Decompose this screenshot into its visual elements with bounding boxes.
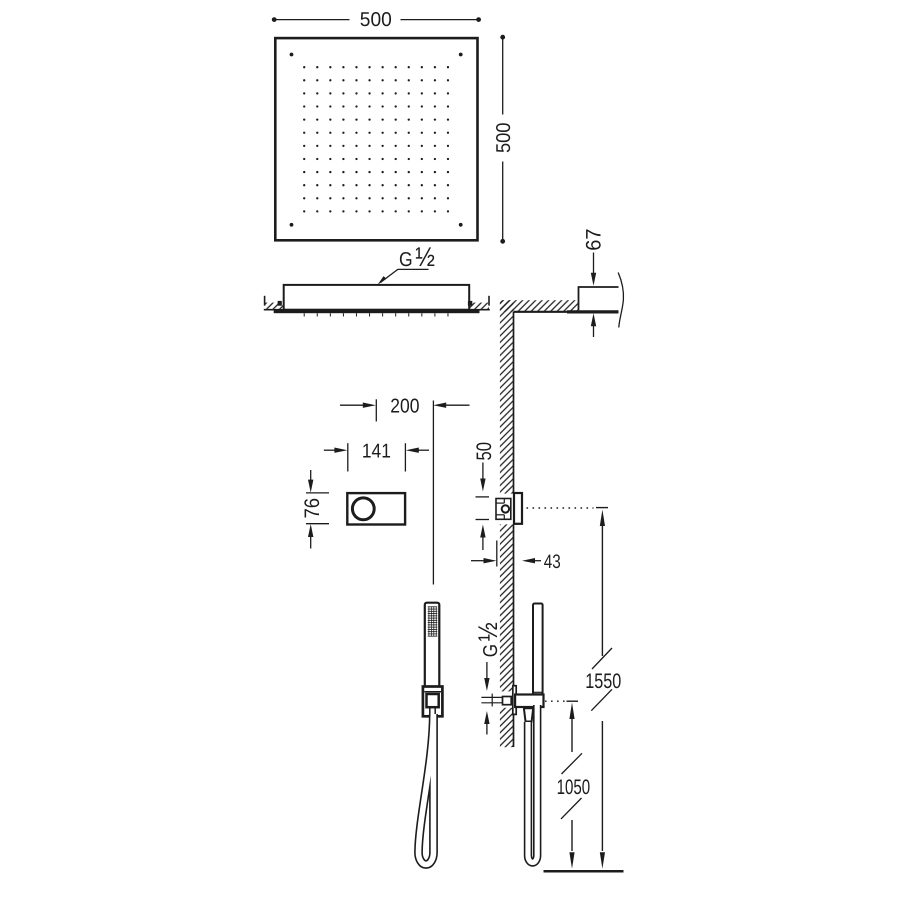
svg-text:1050: 1050 bbox=[557, 776, 591, 799]
svg-text:1550: 1550 bbox=[585, 670, 621, 693]
svg-text:500: 500 bbox=[360, 9, 392, 31]
svg-text:43: 43 bbox=[544, 551, 561, 573]
svg-text:141: 141 bbox=[362, 441, 391, 463]
svg-text:76: 76 bbox=[301, 498, 324, 519]
svg-text:500: 500 bbox=[493, 123, 515, 154]
svg-text:50: 50 bbox=[473, 442, 496, 461]
svg-text:67: 67 bbox=[583, 229, 606, 251]
svg-text:200: 200 bbox=[390, 395, 419, 417]
